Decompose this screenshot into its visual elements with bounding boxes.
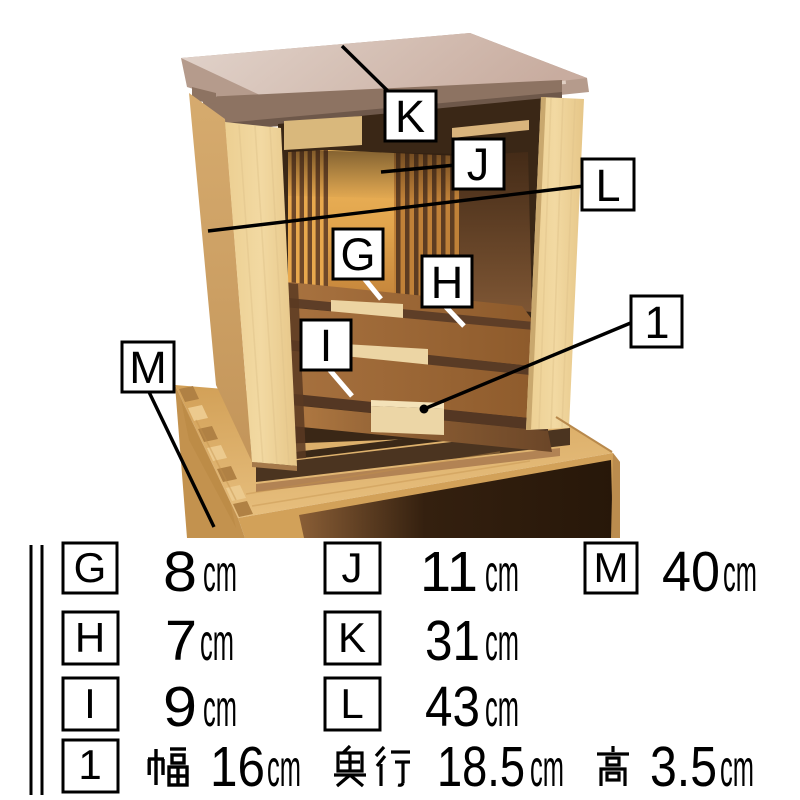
svg-text:L: L [340,680,363,727]
svg-text:cm: cm [203,544,237,602]
svg-text:8: 8 [163,540,197,604]
svg-text:cm: cm [723,544,757,602]
svg-text:cm: cm [200,613,234,671]
svg-text:cm: cm [530,739,564,797]
svg-text:cm: cm [203,679,237,737]
svg-text:1: 1 [644,297,669,348]
svg-text:cm: cm [485,544,519,602]
svg-text:M: M [129,342,167,393]
svg-text:7: 7 [165,609,197,673]
svg-text:J: J [467,139,490,190]
svg-text:cm: cm [267,739,301,797]
svg-text:cm: cm [720,739,754,797]
svg-text:L: L [595,160,620,211]
svg-text:3.5: 3.5 [650,735,717,799]
svg-text:31: 31 [425,609,480,673]
svg-text:H: H [75,614,105,661]
svg-text:G: G [74,544,107,591]
svg-text:H: H [431,257,464,308]
svg-text:9: 9 [163,675,197,739]
svg-text:M: M [594,544,629,591]
svg-text:40: 40 [662,540,720,604]
svg-text:cm: cm [485,679,519,737]
svg-text:K: K [338,614,366,661]
svg-text:J: J [342,544,363,591]
svg-text:I: I [320,320,333,371]
svg-text:1: 1 [78,741,101,788]
svg-text:cm: cm [485,613,519,671]
svg-text:43: 43 [425,675,480,739]
svg-text:18.5: 18.5 [437,735,525,799]
svg-text:16: 16 [210,735,265,799]
svg-text:11: 11 [420,540,478,604]
svg-text:I: I [84,680,96,727]
svg-text:G: G [340,229,375,280]
svg-text:K: K [395,91,425,142]
